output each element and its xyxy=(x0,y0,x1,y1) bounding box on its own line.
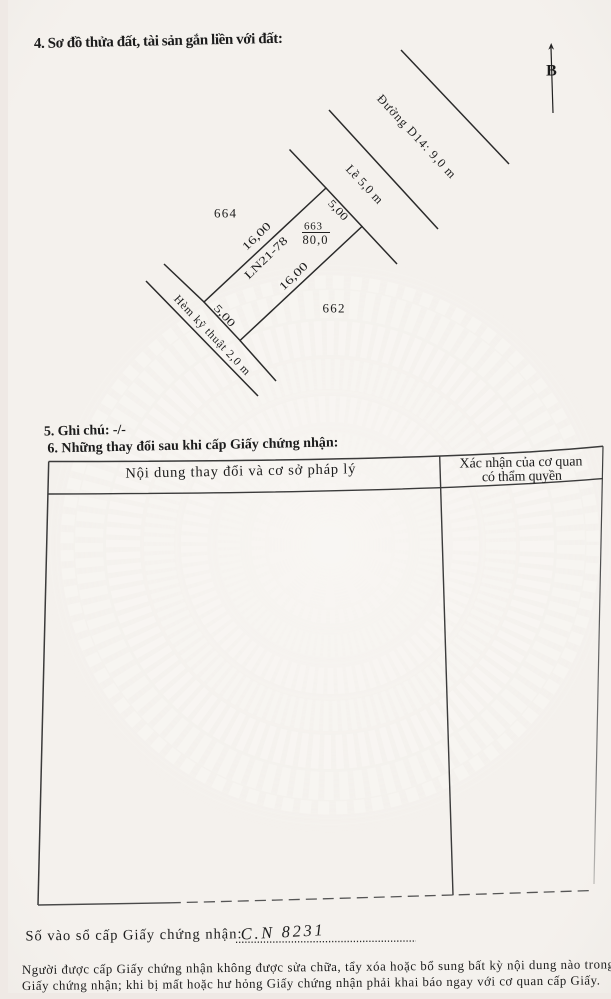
svg-text:662: 662 xyxy=(323,301,345,316)
svg-text:5. Ghi chú: -/-: 5. Ghi chú: -/- xyxy=(44,423,127,440)
svg-text:664: 664 xyxy=(214,206,237,221)
svg-text:663: 663 xyxy=(304,221,323,233)
svg-text:80,0: 80,0 xyxy=(303,233,328,247)
svg-text:Số vào sổ cấp Giấy chứng nhận:: Số vào sổ cấp Giấy chứng nhận: xyxy=(25,926,241,944)
svg-text:B: B xyxy=(546,63,557,80)
svg-text:có thẩm quyền: có thẩm quyền xyxy=(482,469,562,486)
